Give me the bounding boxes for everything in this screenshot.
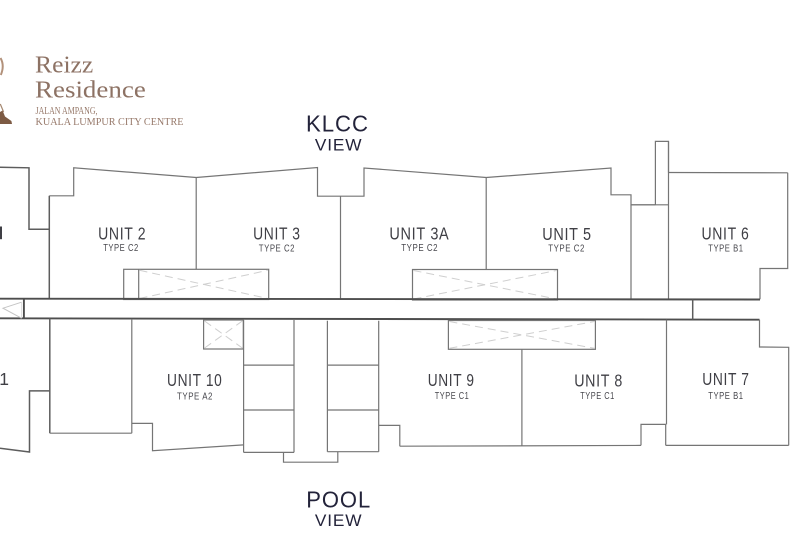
- svg-text:TYPE C1: TYPE C1: [435, 391, 470, 402]
- svg-text:1: 1: [0, 369, 10, 389]
- svg-text:KUALA LUMPUR CITY CENTRE: KUALA LUMPUR CITY CENTRE: [36, 116, 184, 128]
- svg-text:TYPE C1: TYPE C1: [580, 391, 615, 402]
- svg-text:UNIT 7: UNIT 7: [702, 369, 749, 389]
- svg-text:KLCC: KLCC: [306, 111, 369, 137]
- svg-text:VIEW: VIEW: [315, 137, 363, 155]
- svg-text:TYPE C2: TYPE C2: [103, 243, 139, 254]
- svg-text:UNIT 8: UNIT 8: [574, 370, 623, 390]
- svg-text:UNIT 5: UNIT 5: [542, 224, 591, 244]
- svg-text:UNIT 10: UNIT 10: [167, 370, 222, 390]
- svg-text:Reizz: Reizz: [35, 52, 93, 79]
- svg-text:TYPE B1: TYPE B1: [708, 391, 743, 402]
- svg-text:UNIT 3: UNIT 3: [253, 223, 301, 243]
- svg-text:TYPE A2: TYPE A2: [177, 392, 213, 403]
- svg-text:Residence: Residence: [35, 77, 146, 104]
- svg-text:POOL: POOL: [306, 487, 371, 513]
- svg-text:UNIT 3A: UNIT 3A: [389, 224, 449, 244]
- svg-text:TYPE C2: TYPE C2: [548, 243, 585, 254]
- svg-text:UNIT 9: UNIT 9: [428, 370, 475, 390]
- svg-text:TYPE B1: TYPE B1: [708, 243, 743, 254]
- svg-text:TYPE C2: TYPE C2: [259, 243, 295, 254]
- svg-text:VIEW: VIEW: [315, 512, 363, 530]
- svg-text:UNIT 2: UNIT 2: [98, 223, 146, 243]
- svg-text:UNIT 6: UNIT 6: [702, 223, 750, 243]
- svg-text:JALAN AMPANG,: JALAN AMPANG,: [36, 105, 98, 117]
- svg-text:TYPE C2: TYPE C2: [401, 243, 438, 254]
